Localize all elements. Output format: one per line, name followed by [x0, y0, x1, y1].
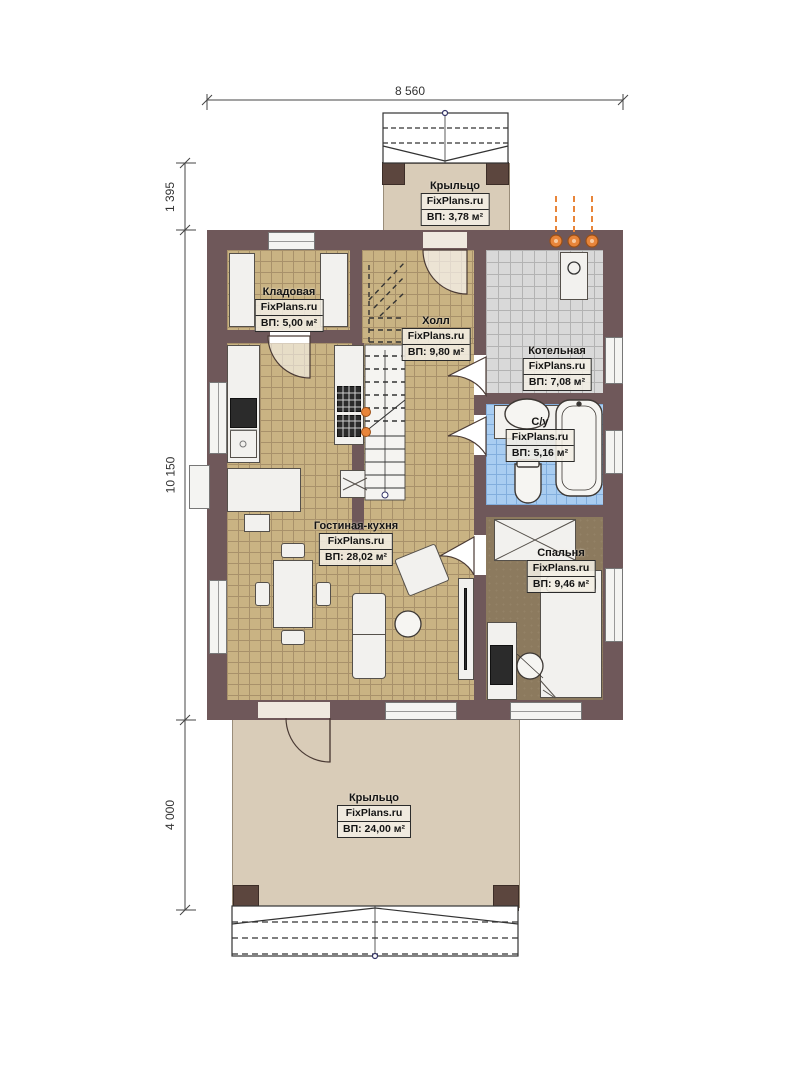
floor-plan: 8 560 1 395 10 150 4 000 Крыльцо FixPlan… [0, 0, 792, 1080]
room-info-box: FixPlans.ru ВП: 5,16 м² [506, 429, 575, 462]
coffee-table [395, 611, 421, 637]
room-label-living-kitchen: Гостиная-кухня FixPlans.ru ВП: 28,02 м² [314, 520, 398, 566]
room-info-box: FixPlans.ru ВП: 24,00 м² [337, 805, 411, 838]
dim-left-bottom-label: 4 000 [163, 800, 177, 830]
dim-top-label: 8 560 [395, 84, 425, 98]
dim-left-middle-label: 10 150 [163, 457, 177, 494]
room-area: ВП: 3,78 м² [422, 210, 489, 225]
room-brand: FixPlans.ru [507, 430, 574, 446]
room-label-storage: Кладовая FixPlans.ru ВП: 5,00 м² [255, 286, 324, 332]
porch-bottom-roof [232, 906, 518, 959]
room-area: ВП: 28,02 м² [320, 550, 392, 565]
round-items [395, 611, 543, 679]
dim-left-top-label: 1 395 [163, 182, 177, 212]
room-info-box: FixPlans.ru ВП: 3,78 м² [421, 193, 490, 226]
cooktop-grid [230, 386, 361, 447]
room-info-box: FixPlans.ru ВП: 5,00 м² [255, 299, 324, 332]
door-boiler [448, 357, 486, 395]
room-label-boiler: Котельная FixPlans.ru ВП: 7,08 м² [523, 345, 592, 391]
room-brand: FixPlans.ru [338, 806, 410, 822]
room-brand: FixPlans.ru [320, 534, 392, 550]
room-info-box: FixPlans.ru ВП: 9,80 м² [402, 328, 471, 361]
room-area: ВП: 7,08 м² [524, 375, 591, 390]
bed-fold [540, 680, 556, 698]
room-label-bathroom: С/у FixPlans.ru ВП: 5,16 м² [506, 416, 575, 462]
room-brand: FixPlans.ru [524, 359, 591, 375]
room-label-porch-bottom: Крыльцо FixPlans.ru ВП: 24,00 м² [337, 792, 411, 838]
door-entry-bottom [286, 718, 330, 762]
room-info-box: FixPlans.ru ВП: 7,08 м² [523, 358, 592, 391]
room-info-box: FixPlans.ru ВП: 9,46 м² [527, 560, 596, 593]
room-label-porch-top: Крыльцо FixPlans.ru ВП: 3,78 м² [421, 180, 490, 226]
door-storage [268, 336, 310, 378]
room-name: Спальня [527, 547, 596, 559]
room-name: Холл [402, 315, 471, 327]
room-brand: FixPlans.ru [422, 194, 489, 210]
door-entry-top [423, 250, 467, 294]
room-area: ВП: 9,80 м² [403, 345, 470, 360]
toilet [515, 464, 541, 503]
room-brand: FixPlans.ru [403, 329, 470, 345]
room-name: Крыльцо [421, 180, 490, 192]
door-bedroom [440, 537, 474, 575]
room-brand: FixPlans.ru [528, 561, 595, 577]
room-label-bedroom: Спальня FixPlans.ru ВП: 9,46 м² [527, 547, 596, 593]
dimension-line-left [176, 158, 196, 915]
door-bathroom [448, 417, 486, 455]
room-info-box: FixPlans.ru ВП: 28,02 м² [319, 533, 393, 566]
room-area: ВП: 5,16 м² [507, 446, 574, 461]
room-name: Крыльцо [337, 792, 411, 804]
room-area: ВП: 5,00 м² [256, 316, 323, 331]
room-name: Котельная [523, 345, 592, 357]
room-area: ВП: 9,46 м² [528, 577, 595, 592]
porch-top-roof [383, 111, 508, 164]
room-name: Кладовая [255, 286, 324, 298]
room-label-hall: Холл FixPlans.ru ВП: 9,80 м² [402, 315, 471, 361]
room-brand: FixPlans.ru [256, 300, 323, 316]
room-name: С/у [506, 416, 575, 428]
room-name: Гостиная-кухня [314, 520, 398, 532]
staircase [365, 262, 405, 500]
room-area: ВП: 24,00 м² [338, 822, 410, 837]
